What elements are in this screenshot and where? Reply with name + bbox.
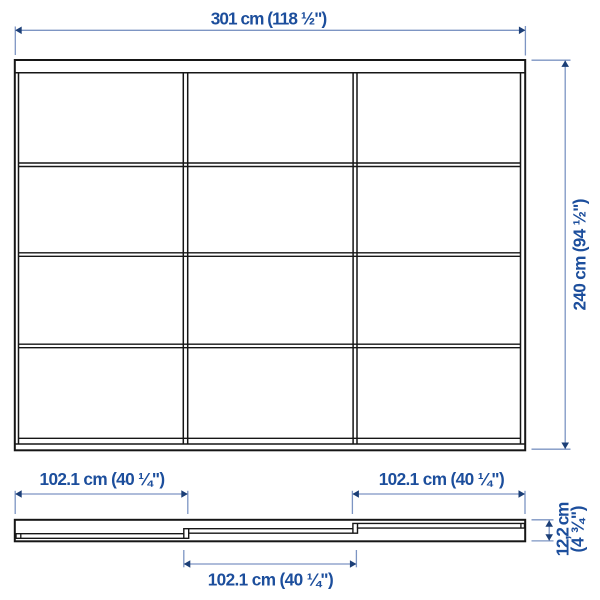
svg-text:102.1 cm (40 ¼"): 102.1 cm (40 ¼")	[40, 469, 166, 489]
svg-text:301 cm (118 ½"): 301 cm (118 ½")	[211, 8, 328, 28]
svg-text:240 cm (94 ½"): 240 cm (94 ½")	[570, 199, 590, 311]
svg-text:102.1 cm (40 ¼"): 102.1 cm (40 ¼")	[379, 469, 505, 489]
svg-text:102.1 cm (40 ¼"): 102.1 cm (40 ¼")	[208, 570, 334, 590]
svg-text:(4 ¾"): (4 ¾")	[568, 506, 588, 553]
